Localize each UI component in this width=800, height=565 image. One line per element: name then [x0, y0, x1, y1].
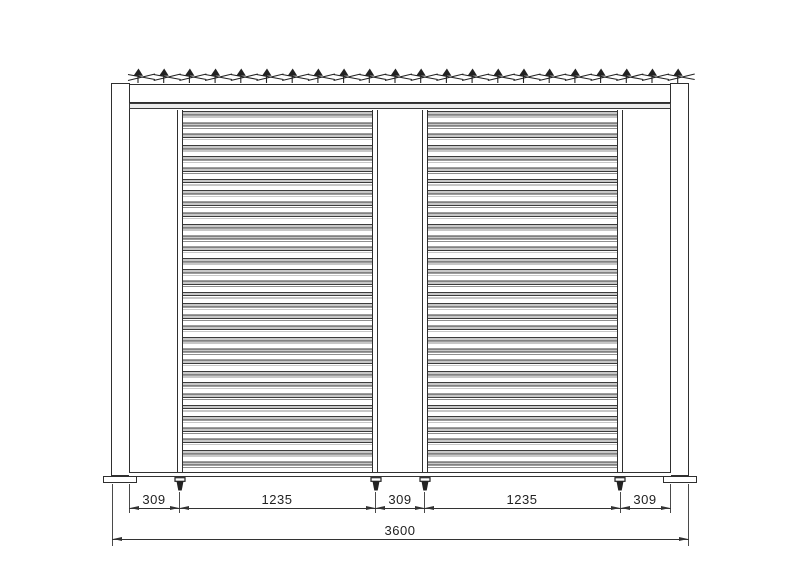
- dim-arrow: [113, 537, 122, 541]
- leveling-foot: [173, 477, 187, 492]
- extension-line: [688, 484, 689, 546]
- panel-stile: [372, 110, 378, 473]
- dim-label-1235-left: 1235: [237, 493, 317, 507]
- dim-arrow: [180, 506, 189, 510]
- right-post: [670, 83, 689, 476]
- louver-area: [183, 111, 372, 472]
- dim-arrow: [611, 506, 620, 510]
- pergola-elevation-drawing: 309 1235 309 1235 309 3600: [0, 0, 800, 565]
- leveling-foot: [613, 477, 627, 492]
- guide-rail: [129, 103, 671, 109]
- dimension-line-row1: [129, 508, 671, 509]
- panel-stile: [617, 110, 623, 473]
- louver-panel-1: [177, 110, 378, 473]
- post-base-plate-right: [663, 476, 697, 483]
- dim-arrow: [621, 506, 630, 510]
- roof-louvers: [124, 61, 704, 85]
- dim-arrow: [170, 506, 179, 510]
- top-beam: [129, 84, 671, 103]
- leveling-foot: [418, 477, 432, 492]
- dim-arrow: [425, 506, 434, 510]
- louver-area: [428, 111, 617, 472]
- dimension-line-total: [112, 539, 689, 540]
- bottom-rail: [129, 472, 671, 477]
- dim-arrow: [679, 537, 688, 541]
- dim-arrow: [130, 506, 139, 510]
- post-base-plate-left: [103, 476, 137, 483]
- dim-label-1235-right: 1235: [482, 493, 562, 507]
- louver-panel-2: [422, 110, 623, 473]
- dim-label-total: 3600: [360, 524, 440, 538]
- dim-arrow: [661, 506, 670, 510]
- dim-arrow: [376, 506, 385, 510]
- dim-arrow: [366, 506, 375, 510]
- left-post: [111, 83, 130, 476]
- dim-arrow: [415, 506, 424, 510]
- leveling-foot: [369, 477, 383, 492]
